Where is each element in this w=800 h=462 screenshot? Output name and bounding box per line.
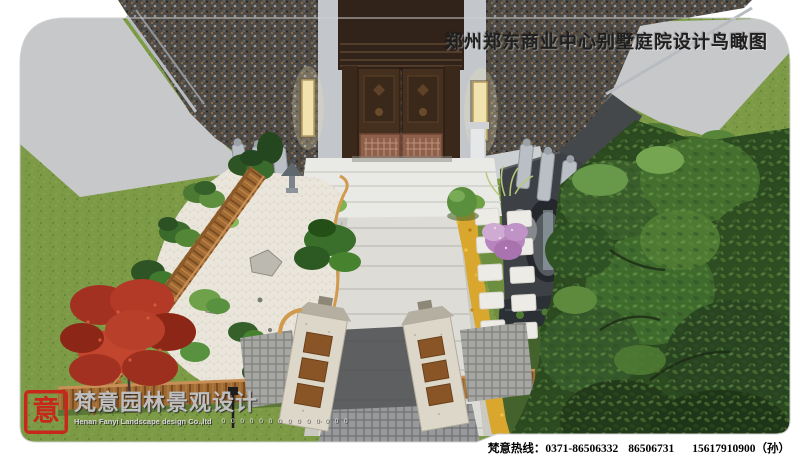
logo-digit-row: 0 0 0 0 0 0 0 0 0 0 0 0 0 0 [222,418,350,425]
rendering-title: 郑州郑东商业中心别墅庭院设计鸟瞰图 [445,28,768,54]
lily-pad [516,311,524,319]
seal-character: 意 [32,398,60,426]
lamp-shade [302,80,314,136]
logo-subline: Henan Fanyi Landscape design Co.,ltd 0 0… [74,417,350,426]
hotline-phone-1: 0371-86506332 [545,443,618,455]
company-logo: 意 梵意园林景观设计 Henan Fanyi Landscape design … [24,390,350,434]
wall-lamp-left [292,66,324,150]
company-name-cn: 梵意园林景观设计 [74,390,350,416]
door-knocker-left [375,108,383,116]
hotline-phone-3: 15617910900（孙） [692,443,790,455]
door-frame-right [444,66,460,162]
hotline-phone-2: 86506731 [628,443,674,455]
presentation-board: 郑州郑东商业中心别墅庭院设计鸟瞰图 意 梵意园林景观设计 Henan Fanyi… [0,0,800,462]
door-shadow [352,156,452,162]
pilaster-cap [466,122,489,129]
door-knocker-right [419,108,427,116]
lattice-paving-right [460,322,534,402]
pebble [258,298,263,303]
logo-text-block: 梵意园林景观设计 Henan Fanyi Landscape design Co… [74,390,350,426]
company-seal-icon: 意 [24,390,68,434]
hotline: 梵意热线：0371-865063328650673115617910900（孙） [488,440,790,456]
hotline-label: 梵意热线： [488,443,546,455]
company-name-en: Henan Fanyi Landscape design Co.,ltd [74,417,212,426]
pebble [268,328,272,332]
door-frame-left [342,66,358,162]
